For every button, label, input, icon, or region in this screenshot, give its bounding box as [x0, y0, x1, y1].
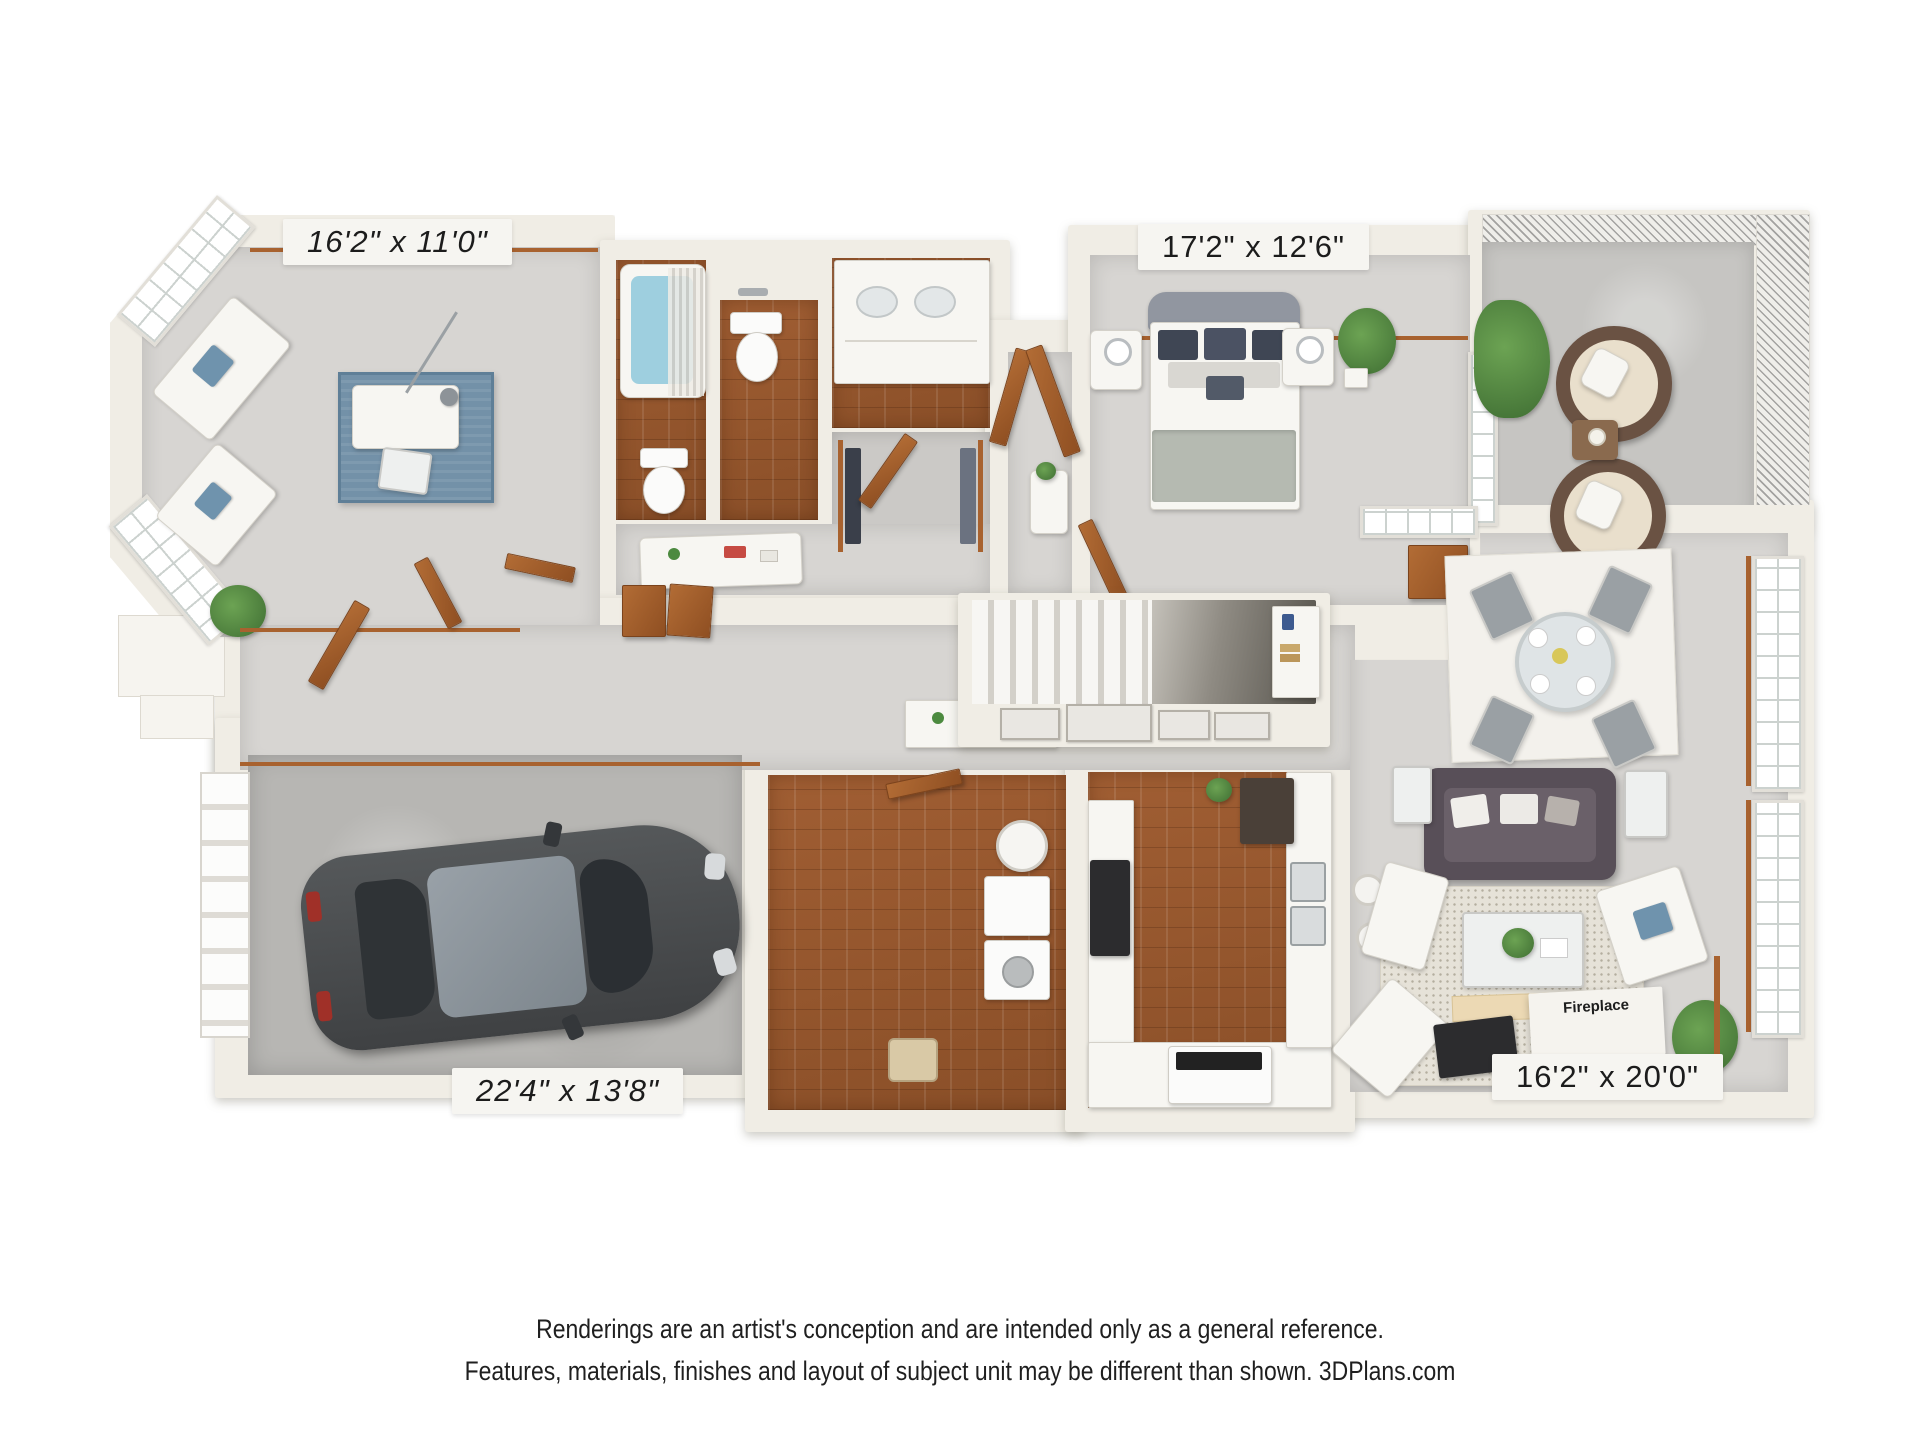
shelf-vase-blue	[1282, 614, 1294, 630]
stove-grate	[1176, 1052, 1262, 1070]
closet-rod-left	[838, 440, 843, 552]
patio-screen-right	[1756, 214, 1810, 522]
closet-clothes-left	[845, 448, 861, 544]
entry-step	[140, 695, 214, 739]
corridor-flowers	[1036, 462, 1056, 480]
shelf-box-gold-2	[1280, 654, 1300, 662]
stair-picture-2	[1066, 704, 1152, 742]
living-room-dimension-label: 16'2" x 20'0"	[1492, 1054, 1723, 1100]
closet-rod-right	[978, 440, 983, 552]
vanity-cabinet	[834, 260, 990, 384]
kitchen-plant	[1206, 778, 1232, 802]
stair-picture-4	[1214, 712, 1270, 740]
closet-clothes-right	[960, 448, 976, 544]
counter-item-red	[724, 546, 746, 558]
bed-accent-pillow	[1206, 376, 1244, 400]
living-window-2	[1752, 800, 1804, 1038]
bedroom-plant-pot	[1344, 368, 1368, 388]
hall-closet-door-right	[666, 584, 714, 639]
shelf-box-gold-1	[1280, 644, 1300, 652]
bedroom-plant	[1338, 308, 1396, 374]
kitchen-range-black	[1090, 860, 1130, 956]
living-window-1	[1752, 556, 1804, 792]
dryer-door	[1002, 956, 1034, 988]
car-roof-glass	[426, 854, 589, 1019]
office-desk-chair	[377, 447, 432, 496]
bed-pillow-2	[1204, 328, 1246, 360]
side-table	[1392, 766, 1432, 824]
nightstand-lamp-left	[1104, 338, 1132, 366]
corridor-cart	[1030, 470, 1068, 534]
shower-curtain	[668, 268, 704, 396]
towel-ring	[738, 288, 768, 296]
sofa-pillow-1	[1450, 794, 1490, 829]
disclaimer-line-1: Renderings are an artist's conception an…	[144, 1308, 1776, 1350]
garage-door	[200, 772, 250, 1038]
coffee-table-plant	[1502, 928, 1534, 958]
fireplace: Fireplace	[1528, 987, 1665, 1062]
laundry-basket	[888, 1038, 938, 1082]
hall-makeup-counter	[639, 532, 803, 590]
refrigerator	[1240, 778, 1294, 844]
place-setting-2	[1576, 626, 1596, 646]
patio-table-flowers	[1588, 428, 1606, 446]
arc-lamp-head	[440, 388, 458, 406]
water-heater	[996, 820, 1048, 872]
nightstand-lamp-right	[1296, 336, 1324, 364]
toilet-bowl-1	[643, 466, 685, 514]
bedroom-dimension-label: 17'2" x 12'6"	[1138, 224, 1369, 270]
hallway-upper-trim	[240, 628, 520, 632]
vanity-sink-right	[914, 286, 956, 318]
sink-basin-1	[1290, 862, 1326, 902]
stair-shelf	[1272, 606, 1320, 698]
counter-item-green	[668, 548, 680, 560]
console-table	[1624, 770, 1668, 838]
hall-closet-door-left	[622, 585, 666, 637]
ledge-item-green	[932, 712, 944, 724]
stair-picture-3	[1158, 710, 1210, 740]
floor-plan-rendering: Fireplace 16'2" x 11'0" 17'2" x 12'6" 22…	[0, 0, 1920, 1440]
place-setting-1	[1528, 628, 1548, 648]
place-setting-3	[1530, 674, 1550, 694]
toilet-tank-2	[730, 312, 782, 334]
office-dimension-label: 16'2" x 11'0"	[283, 219, 512, 265]
patio-palm	[1474, 300, 1550, 418]
disclaimer-line-2: Features, materials, finishes and layout…	[144, 1350, 1776, 1392]
stair-picture-1	[1000, 708, 1060, 740]
hallway-lower-trim	[240, 762, 760, 766]
car-headlight-left	[704, 853, 726, 880]
bed-pillow-1	[1158, 330, 1198, 360]
stair-treads	[972, 600, 1152, 704]
vanity-sink-left	[856, 286, 898, 318]
disclaimer: Renderings are an artist's conception an…	[0, 1308, 1920, 1392]
vanity-cabinet-line	[845, 340, 977, 342]
sink-basin-2	[1290, 906, 1326, 946]
dining-centerpiece	[1552, 648, 1568, 664]
sofa-pillow-3	[1544, 795, 1580, 826]
floor-plan-screenshot: Fireplace 16'2" x 11'0" 17'2" x 12'6" 22…	[0, 0, 1920, 1440]
window-trim-right-1	[1746, 556, 1751, 786]
window-trim-right-2	[1746, 800, 1751, 1032]
car-taillight-right	[316, 990, 333, 1021]
coffee-table-magazine	[1540, 938, 1568, 958]
living-patio-window	[1360, 506, 1478, 538]
bed-duvet	[1152, 430, 1296, 502]
counter-item-white	[760, 550, 778, 562]
toilet-tank-1	[640, 448, 688, 468]
place-setting-4	[1576, 676, 1596, 696]
toilet-bowl-2	[736, 332, 778, 382]
sofa-pillow-2	[1500, 794, 1538, 824]
garage-dimension-label: 22'4" x 13'8"	[452, 1068, 683, 1114]
car-taillight-left	[305, 891, 322, 922]
fireplace-wall-trim	[1714, 956, 1720, 1066]
washer	[984, 876, 1050, 936]
